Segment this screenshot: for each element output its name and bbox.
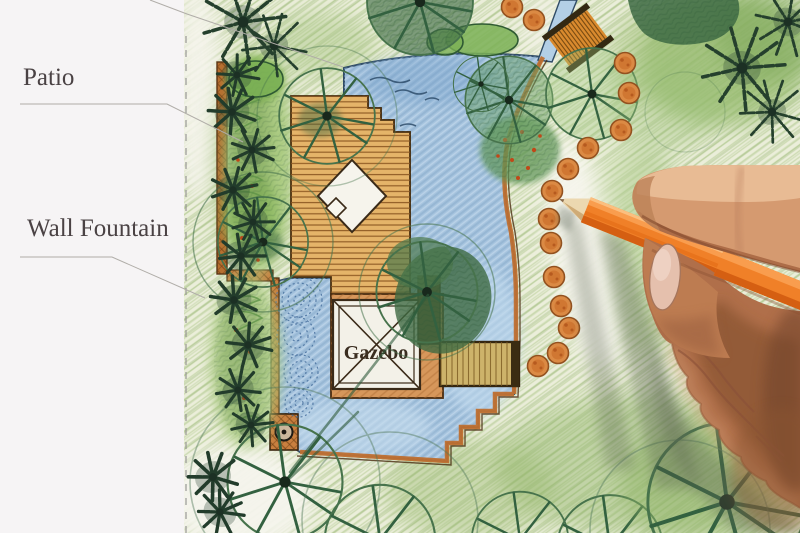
svg-text:Wall Fountain: Wall Fountain	[27, 215, 169, 242]
svg-text:Patio: Patio	[23, 64, 74, 91]
